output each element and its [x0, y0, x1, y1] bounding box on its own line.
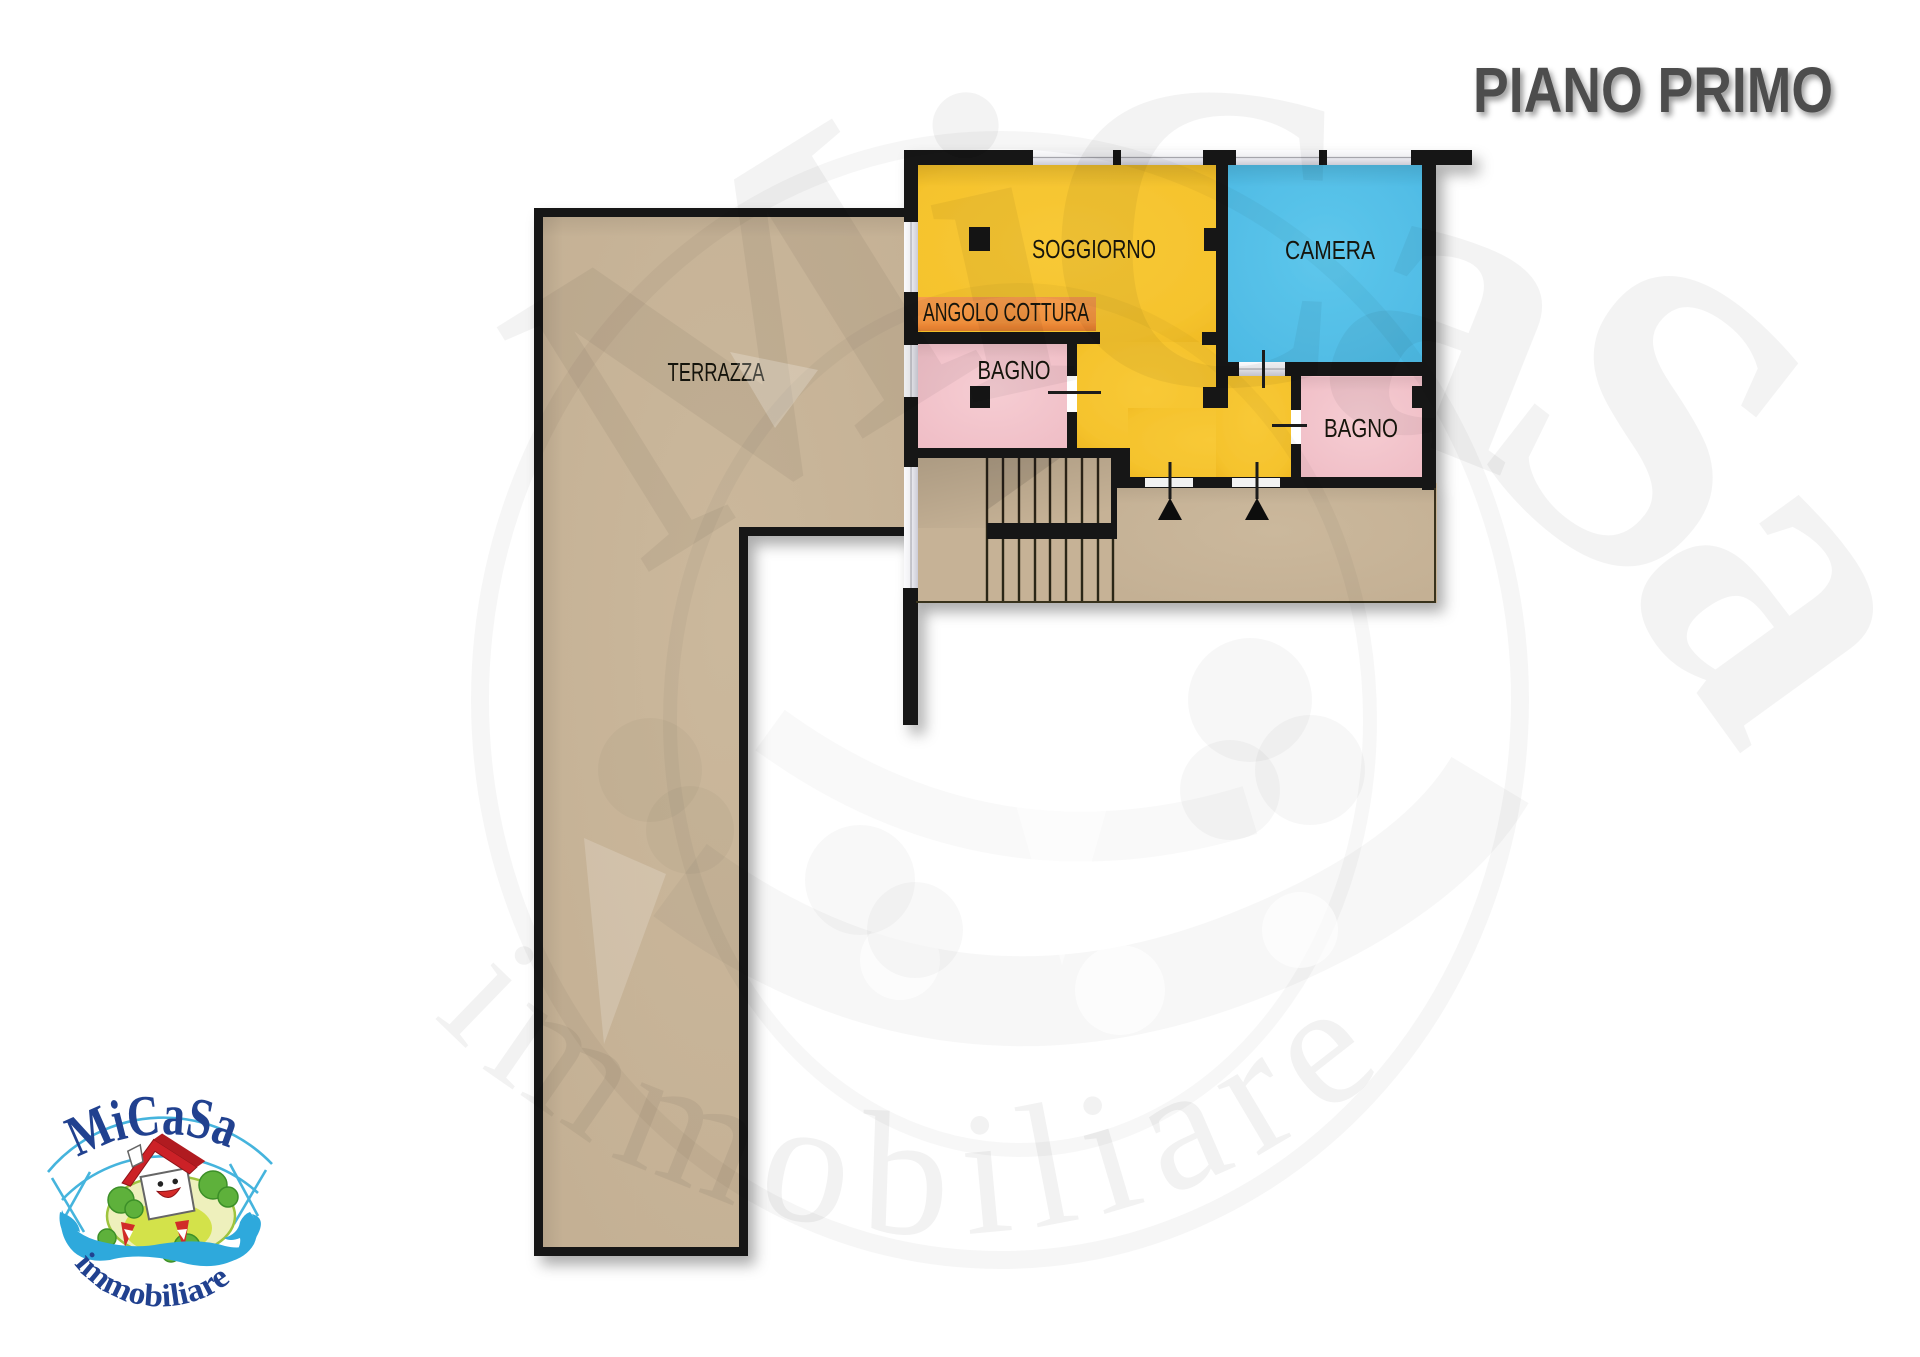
- svg-text:PIANO PRIMO: PIANO PRIMO: [1473, 54, 1833, 126]
